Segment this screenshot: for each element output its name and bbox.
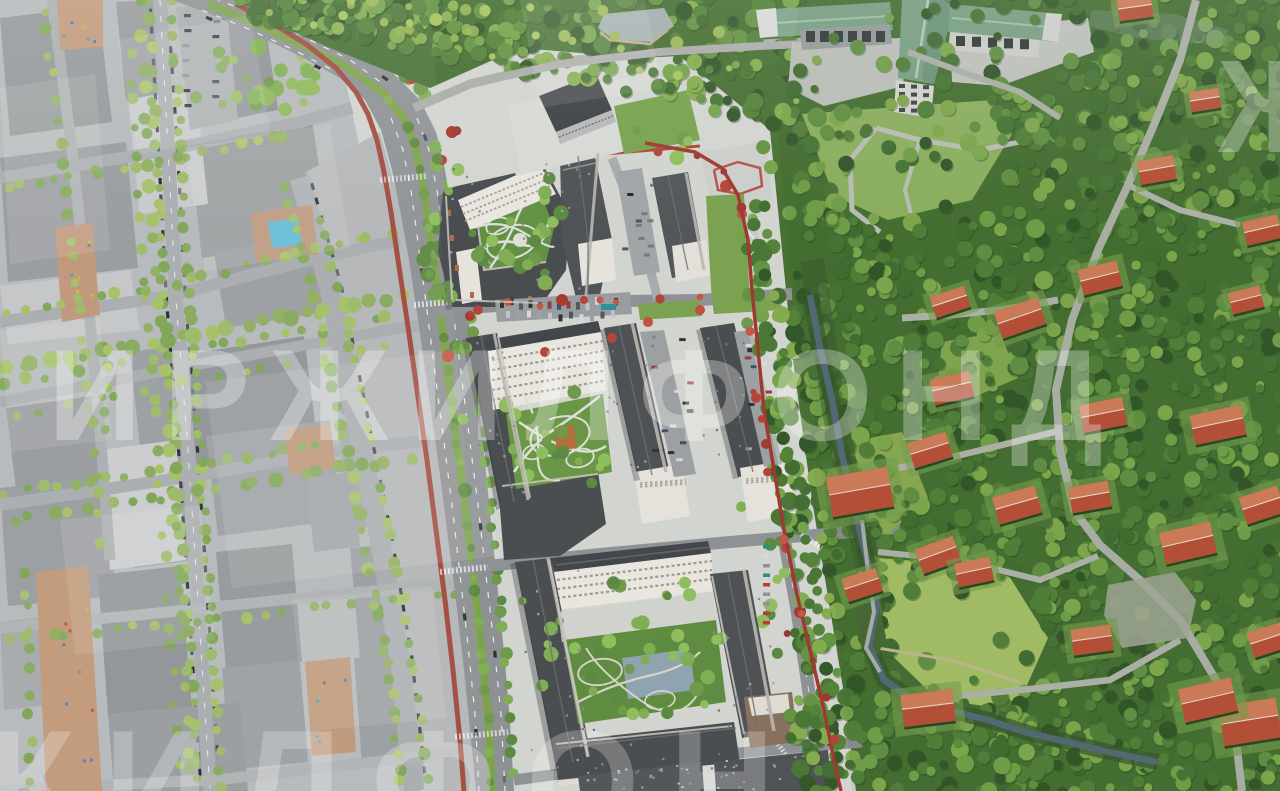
svg-text:Ж: Ж [1217, 33, 1280, 180]
svg-text:ЖИЛФОН: ЖИЛФОН [0, 700, 805, 791]
svg-text:ИРЖИЛФОНД: ИРЖИЛФОНД [48, 322, 1125, 468]
